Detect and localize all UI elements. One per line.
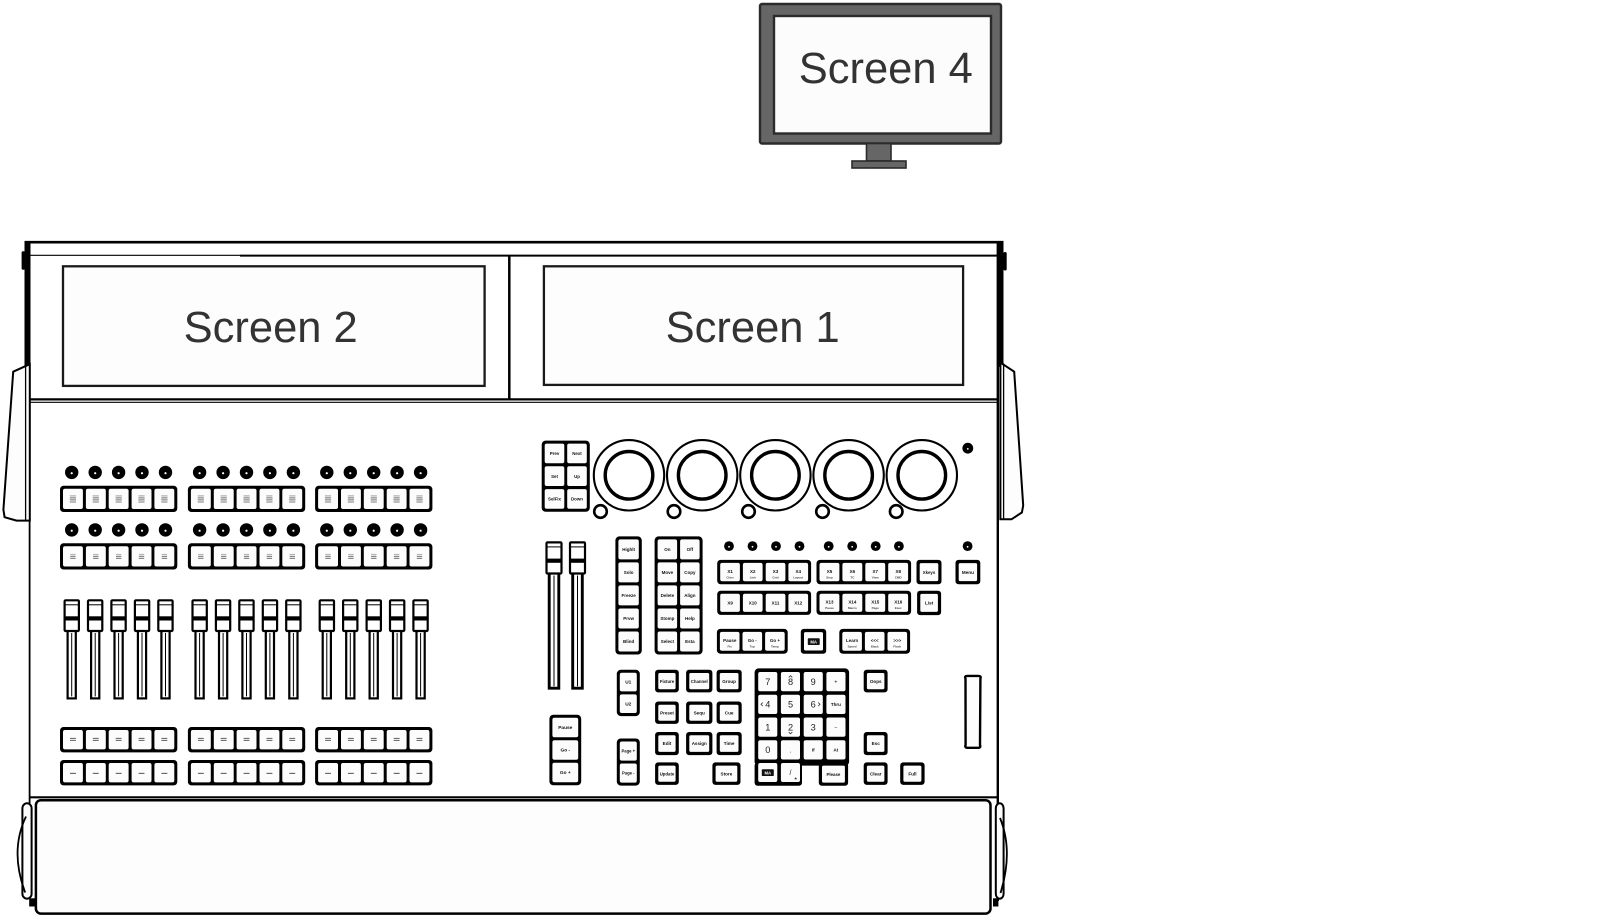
svg-text:View: View	[872, 575, 879, 579]
svg-text:Up: Up	[574, 474, 580, 479]
svg-text:X16: X16	[894, 600, 903, 605]
svg-text:/: /	[790, 770, 792, 777]
svg-text:Oops: Oops	[870, 679, 882, 684]
svg-text:Pause: Pause	[723, 638, 737, 643]
svg-text:3: 3	[811, 722, 816, 732]
svg-text:Go +: Go +	[770, 638, 780, 643]
svg-text:6: 6	[811, 700, 816, 710]
svg-text:Page -: Page -	[622, 771, 635, 776]
svg-text:Move: Move	[662, 570, 674, 575]
svg-text:1: 1	[765, 722, 770, 732]
svg-text:Go -: Go -	[748, 638, 757, 643]
svg-text:X11: X11	[772, 600, 780, 605]
svg-text:+: +	[834, 680, 837, 686]
svg-text:Next: Next	[572, 451, 582, 456]
svg-text:Update: Update	[660, 771, 675, 776]
svg-text:Stop: Stop	[826, 575, 833, 579]
svg-text:At: At	[834, 748, 839, 753]
svg-text:X6: X6	[850, 569, 856, 574]
svg-text:Flash: Flash	[893, 645, 901, 649]
svg-text:CMD: CMD	[895, 575, 903, 579]
svg-text:Solo: Solo	[624, 570, 634, 575]
svg-text:−: −	[834, 725, 837, 731]
svg-text:Sequ: Sequ	[694, 710, 705, 715]
svg-text:Clear: Clear	[870, 771, 882, 776]
svg-text:Temp: Temp	[771, 645, 779, 649]
svg-text:Exec: Exec	[895, 606, 902, 610]
svg-text:4: 4	[765, 700, 770, 710]
svg-text:Pause: Pause	[558, 725, 572, 731]
svg-text:Black: Black	[871, 645, 879, 649]
svg-text:Please: Please	[826, 772, 840, 777]
svg-text:Freeze: Freeze	[621, 593, 636, 598]
svg-text:Store: Store	[721, 771, 733, 776]
svg-text:X1: X1	[727, 569, 733, 574]
svg-text:Fixture: Fixture	[660, 679, 675, 684]
svg-text:Preset: Preset	[660, 710, 674, 715]
svg-text:Align: Align	[684, 593, 695, 598]
svg-text:List: List	[925, 601, 934, 606]
svg-text:Select: Select	[661, 639, 675, 644]
svg-text:Esc: Esc	[872, 741, 881, 746]
svg-text:X14: X14	[848, 600, 857, 605]
svg-text:Prvw: Prvw	[623, 616, 634, 621]
svg-text:Group: Group	[722, 679, 736, 684]
svg-text:Edit: Edit	[663, 741, 672, 746]
svg-text:U2: U2	[625, 701, 631, 707]
svg-text:X4: X4	[795, 569, 801, 574]
svg-text:Grid: Grid	[772, 575, 778, 579]
svg-text:7: 7	[765, 677, 770, 687]
svg-text:Blind: Blind	[623, 639, 634, 644]
svg-text:X5: X5	[827, 569, 833, 574]
svg-text:Layout: Layout	[793, 575, 803, 579]
svg-text:9: 9	[811, 677, 816, 687]
svg-text:MA: MA	[810, 640, 817, 645]
svg-text:Time: Time	[724, 741, 735, 746]
svg-text:Pause: Pause	[825, 606, 834, 610]
svg-text:Menu: Menu	[962, 570, 974, 575]
svg-text:Go +: Go +	[560, 770, 571, 776]
svg-text:Screen 2: Screen 2	[184, 304, 358, 352]
svg-text:X2: X2	[750, 569, 756, 574]
svg-text:Copy: Copy	[684, 570, 696, 575]
svg-text:Link: Link	[750, 575, 756, 579]
svg-text:On: On	[664, 547, 671, 552]
svg-text:Down: Down	[571, 497, 583, 502]
svg-text:Macro: Macro	[848, 606, 857, 610]
svg-text:X9: X9	[727, 600, 733, 605]
svg-text:Delete: Delete	[661, 593, 675, 598]
svg-text:0: 0	[765, 745, 770, 755]
svg-text:Xkeys: Xkeys	[923, 570, 936, 575]
svg-text:X8: X8	[895, 569, 901, 574]
svg-text:Highlt: Highlt	[622, 547, 635, 552]
svg-text:Top: Top	[750, 645, 755, 649]
svg-text:Learn: Learn	[846, 638, 859, 643]
svg-text:Stomp: Stomp	[660, 616, 674, 621]
svg-text:Thru: Thru	[831, 702, 841, 707]
svg-text:Off: Off	[687, 547, 694, 552]
svg-text:X13: X13	[825, 600, 834, 605]
svg-text:>>>: >>>	[893, 638, 901, 643]
svg-text:Page: Page	[872, 606, 880, 610]
svg-text:Page +: Page +	[621, 749, 635, 754]
svg-text:X7: X7	[872, 569, 878, 574]
svg-text:8: 8	[788, 677, 793, 687]
svg-text:.: .	[790, 748, 792, 755]
svg-text:Go -: Go -	[561, 748, 571, 754]
svg-text:SelFix: SelFix	[548, 497, 561, 502]
svg-text:X15: X15	[871, 600, 880, 605]
svg-text:Set: Set	[551, 474, 558, 479]
svg-text:Speed: Speed	[848, 645, 857, 649]
svg-text:Help: Help	[685, 616, 695, 621]
svg-text:Full: Full	[908, 771, 916, 776]
svg-text:5: 5	[788, 700, 793, 710]
svg-text:X3: X3	[773, 569, 779, 574]
svg-text:2: 2	[788, 722, 793, 732]
svg-text:Screen 4: Screen 4	[799, 45, 973, 93]
svg-text:Fix: Fix	[728, 645, 733, 649]
svg-text:X10: X10	[749, 600, 758, 605]
svg-text:U1: U1	[625, 680, 631, 686]
svg-text:X12: X12	[794, 600, 803, 605]
svg-text:Screen 1: Screen 1	[666, 304, 840, 352]
svg-text:Channel: Channel	[691, 679, 708, 684]
svg-text:MA: MA	[764, 771, 771, 776]
svg-text:<<<: <<<	[871, 638, 879, 643]
svg-text:Cue: Cue	[725, 710, 734, 715]
svg-text:Chns: Chns	[726, 575, 734, 579]
svg-text:Assign: Assign	[692, 741, 707, 746]
svg-text:Esta: Esta	[685, 639, 695, 644]
svg-text:Prev: Prev	[550, 451, 560, 456]
